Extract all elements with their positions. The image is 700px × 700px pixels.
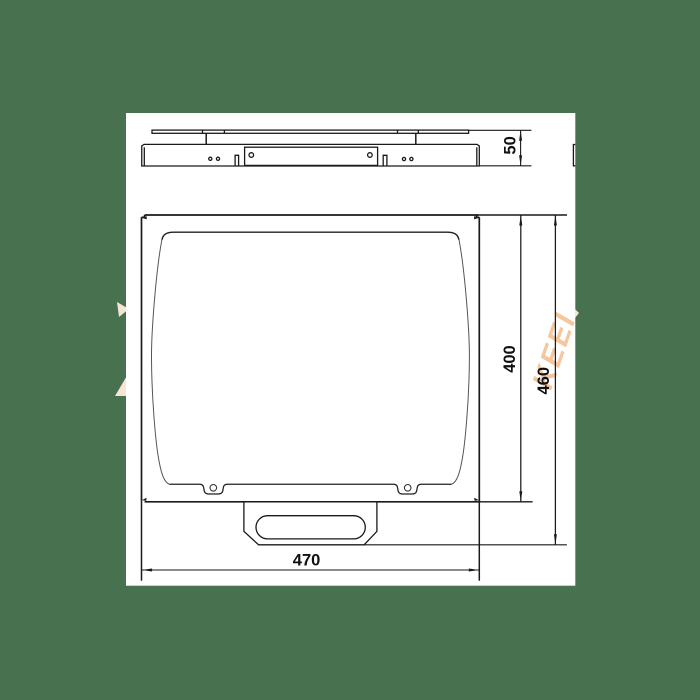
svg-text:460: 460 <box>535 367 553 395</box>
svg-text:470: 470 <box>293 552 321 570</box>
svg-text:400: 400 <box>501 345 519 373</box>
svg-text:50: 50 <box>502 136 520 154</box>
